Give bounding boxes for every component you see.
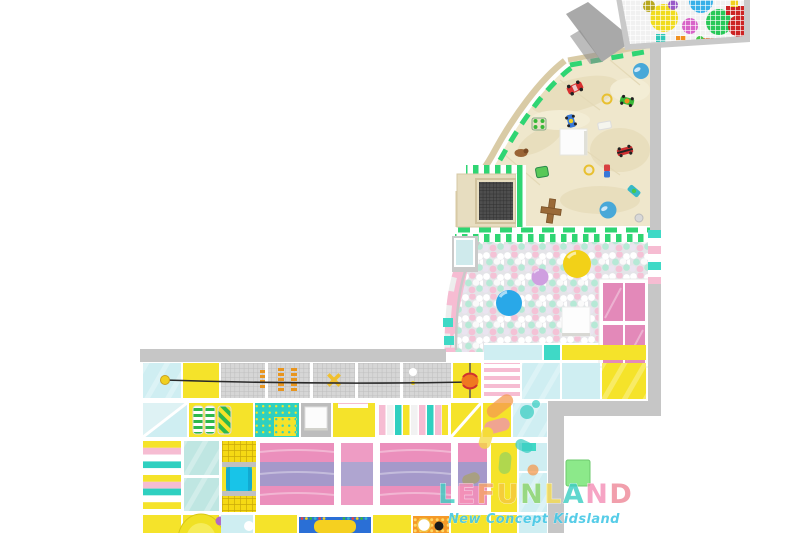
wave-slide-section	[258, 443, 336, 505]
wall-right-lower	[648, 284, 661, 402]
toy-dome-blue	[633, 63, 649, 79]
feature-ball-purple	[532, 269, 549, 286]
trampoline	[457, 165, 526, 227]
toy-dome-blue	[600, 202, 617, 219]
striped-roller-panel	[143, 441, 181, 509]
feature-ball-blue	[496, 290, 522, 316]
checker-border-top	[455, 234, 652, 242]
checker-border-right	[648, 230, 661, 284]
orange-dot-panel	[413, 516, 449, 533]
climbing-net-zone	[615, 0, 750, 50]
glass-panel	[184, 441, 219, 511]
vertical-rollers	[377, 403, 449, 437]
toy-box-green	[535, 166, 549, 178]
pit-corner-structure	[452, 236, 478, 272]
toy-small	[635, 214, 643, 222]
zipline-ball-end	[462, 373, 479, 390]
sand-box-white	[560, 129, 587, 155]
sand-play-zone	[455, 45, 652, 234]
zipline-ball-start	[161, 376, 170, 385]
mesh-panel-row	[221, 363, 451, 398]
playground-floorplan-rendering: LEFUNLAND New Concept Kidsland	[0, 0, 800, 533]
feature-ball-yellow	[563, 250, 591, 278]
toy-dot-board	[532, 118, 546, 130]
window-panel	[305, 407, 327, 431]
roller-obstacles	[193, 406, 231, 434]
playhouse	[299, 517, 371, 533]
spin-barrel	[222, 441, 256, 512]
wall-bottom-horizontal	[548, 401, 661, 416]
wave-slide-section	[339, 443, 375, 505]
floorplan-canvas: LEFUNLAND New Concept Kidsland	[0, 0, 800, 533]
wall-right-upper	[650, 44, 661, 230]
annex-panels	[484, 345, 646, 399]
white-platform	[562, 307, 590, 336]
brand-tagline: New Concept Kidsland	[448, 512, 620, 527]
trampoline-mesh	[479, 182, 513, 220]
toy-car-redblue	[604, 165, 610, 178]
brand-wordmark: LEFUNLAND	[438, 479, 633, 510]
wall-top-structure	[140, 349, 446, 362]
